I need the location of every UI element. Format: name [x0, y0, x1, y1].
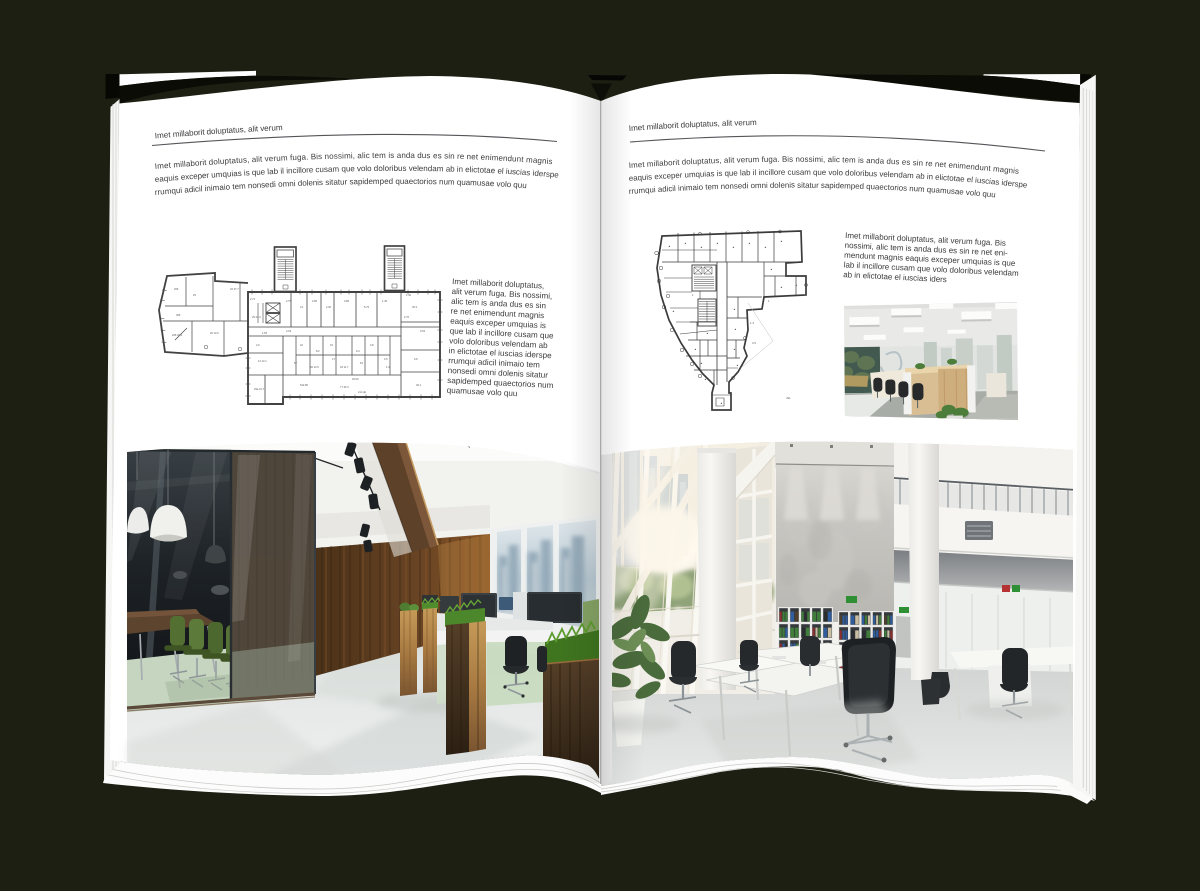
svg-text:542.80: 542.80: [300, 383, 308, 387]
svg-text:2-й оф: 2-й оф: [358, 390, 367, 394]
svg-text:▲: ▲: [700, 245, 703, 249]
svg-text:▲: ▲: [770, 267, 773, 271]
svg-text:25.00: 25.00: [352, 377, 359, 381]
svg-text:3.86: 3.86: [344, 299, 350, 303]
svg-text:▲: ▲: [795, 283, 798, 287]
svg-text:2.6: 2.6: [256, 343, 260, 347]
svg-text:4.03: 4.03: [286, 329, 292, 333]
svg-text:206 40.2: 206 40.2: [172, 333, 183, 337]
svg-text:29a 31.7: 29a 31.7: [254, 387, 265, 391]
svg-text:9.4: 9.4: [356, 349, 360, 353]
svg-text:▲: ▲: [668, 244, 671, 248]
svg-text:2.72: 2.72: [250, 297, 256, 301]
svg-text:206: 206: [174, 287, 179, 291]
svg-text:306: 306: [176, 313, 181, 317]
svg-text:1.40: 1.40: [406, 293, 412, 297]
svg-text:30.1: 30.1: [416, 383, 422, 387]
svg-text:▲: ▲: [720, 401, 723, 405]
svg-text:8.2: 8.2: [316, 349, 320, 353]
svg-text:4.8: 4.8: [370, 343, 374, 347]
svg-text:▲: ▲: [704, 377, 707, 381]
svg-text:32 37.7: 32 37.7: [230, 287, 239, 291]
svg-text:1.3: 1.3: [750, 321, 754, 325]
svg-text:2.80: 2.80: [312, 299, 318, 303]
svg-text:▲: ▲: [716, 241, 719, 245]
svg-text:26 13.6: 26 13.6: [210, 331, 219, 335]
svg-text:▲: ▲: [764, 245, 767, 249]
svg-text:2.30: 2.30: [326, 305, 332, 309]
svg-text:▲: ▲: [780, 239, 783, 243]
svg-text:▲: ▲: [734, 327, 737, 331]
svg-text:▲: ▲: [733, 307, 736, 311]
svg-text:▲: ▲: [748, 241, 751, 245]
svg-text:▲: ▲: [733, 347, 736, 351]
svg-text:77 46.3: 77 46.3: [340, 385, 349, 389]
svg-text:5.75: 5.75: [364, 305, 370, 309]
svg-text:▲: ▲: [672, 309, 675, 313]
svg-text:18 11.7: 18 11.7: [340, 365, 349, 369]
svg-text:36 14.5: 36 14.5: [310, 365, 319, 369]
svg-text:4.5: 4.5: [752, 341, 756, 345]
svg-text:▲: ▲: [736, 363, 739, 367]
svg-text:6.8: 6.8: [414, 357, 418, 361]
svg-text:1.56: 1.56: [262, 331, 268, 335]
svg-text:25 21.6: 25 21.6: [252, 315, 261, 319]
svg-text:▲: ▲: [694, 347, 697, 351]
svg-text:▲: ▲: [732, 245, 735, 249]
svg-text:1.3: 1.3: [386, 365, 390, 369]
svg-text:30.2: 30.2: [412, 305, 418, 309]
svg-text:3.1: 3.1: [300, 305, 304, 309]
svg-text:JSL: JSL: [786, 396, 791, 400]
svg-text:▲: ▲: [684, 241, 687, 245]
svg-text:2.75: 2.75: [286, 299, 292, 303]
svg-text:3.54: 3.54: [420, 329, 426, 333]
svg-text:▲: ▲: [706, 331, 709, 335]
svg-text:▲: ▲: [700, 361, 703, 365]
svg-text:12 13.1: 12 13.1: [258, 359, 267, 363]
svg-text:2.70: 2.70: [404, 315, 410, 319]
svg-text:1.45: 1.45: [382, 299, 388, 303]
svg-text:4.5: 4.5: [384, 357, 388, 361]
svg-text:▲: ▲: [780, 285, 783, 289]
